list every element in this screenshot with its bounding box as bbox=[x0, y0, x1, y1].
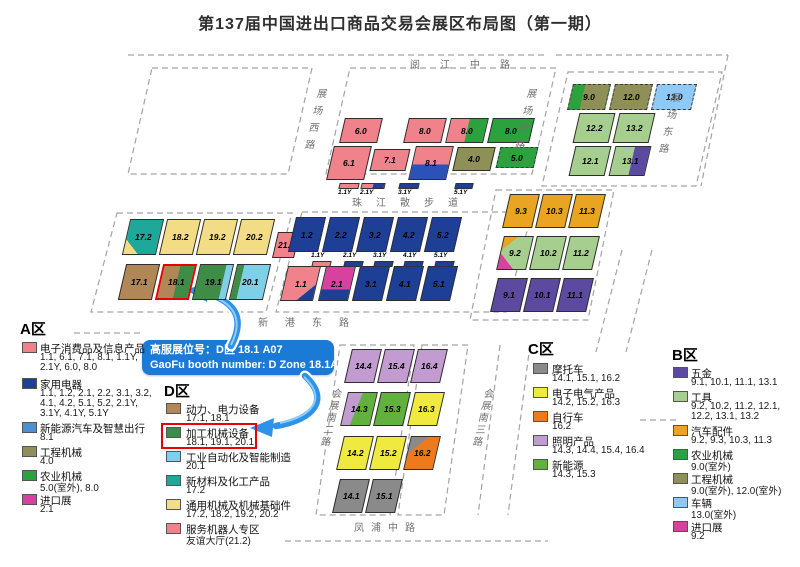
hall-14.3: 14.3 bbox=[340, 392, 378, 426]
hall-label: 6.1 bbox=[343, 158, 355, 168]
hall-label: 6.0 bbox=[355, 126, 367, 136]
hall-label: 7.1 bbox=[384, 155, 396, 165]
hall-label: 16.3 bbox=[418, 404, 435, 414]
legend-halls: 13.0(室外) bbox=[691, 507, 736, 521]
annex-label: 3.1Y bbox=[373, 252, 386, 259]
annex-label: 1.1Y bbox=[338, 189, 351, 196]
hall-label: 20.2 bbox=[246, 232, 263, 242]
hall-label: 3.2 bbox=[369, 230, 381, 240]
hall-12.0: 12.0 bbox=[609, 84, 653, 110]
hall-label: 11.2 bbox=[573, 248, 589, 258]
hall-label: 11.1 bbox=[567, 290, 583, 300]
road-label: 会展南三路 bbox=[467, 388, 496, 448]
legend-swatch bbox=[22, 494, 37, 505]
road-label: 珠江散步道 bbox=[352, 194, 472, 209]
legend-swatch bbox=[166, 427, 181, 438]
annex-bar-5.1Y bbox=[434, 261, 454, 267]
legend-swatch bbox=[22, 378, 37, 389]
legend-swatch bbox=[533, 435, 548, 446]
hall-label: 15.1 bbox=[376, 491, 393, 501]
hall-label: 12.0 bbox=[623, 92, 640, 102]
hall-label: 19.1 bbox=[205, 277, 222, 287]
road-label: 新港东路 bbox=[258, 314, 366, 329]
hall-16.2: 16.2 bbox=[403, 436, 441, 470]
hall-19.2: 19.2 bbox=[196, 219, 238, 255]
hall-label: 1.1 bbox=[295, 279, 307, 289]
legend-halls: 9.0(室外), 12.0(室外) bbox=[691, 483, 781, 497]
hall-label: 10.3 bbox=[546, 206, 563, 216]
legend-swatch bbox=[22, 446, 37, 457]
hall-14.2: 14.2 bbox=[336, 436, 374, 470]
hall-label: 8.0 bbox=[419, 126, 431, 136]
legend-halls: 17.2, 18.2, 19.2, 20.2 bbox=[186, 509, 279, 520]
page-title: 第137届中国进出口商品交易会展区布局图（第一期） bbox=[0, 10, 800, 34]
legend-halls: 16.2 bbox=[552, 421, 571, 432]
hall-11.2: 11.2 bbox=[562, 236, 600, 270]
hall-label: 12.1 bbox=[582, 156, 599, 166]
legend-category: 新能源汽车及智慧出行 bbox=[40, 421, 145, 436]
road-label: 凤浦中路 bbox=[354, 519, 422, 534]
hall-1.1: 1.1 bbox=[280, 266, 321, 301]
legend-halls: 20.1 bbox=[186, 461, 205, 472]
legend-title-B: B区 bbox=[672, 344, 698, 365]
hall-16.4: 16.4 bbox=[410, 349, 448, 383]
hall-10.2: 10.2 bbox=[529, 236, 567, 270]
hall-label: 14.4 bbox=[355, 361, 372, 371]
hall-label: 4.2 bbox=[403, 230, 415, 240]
hall-6.1: 6.1 bbox=[326, 146, 372, 180]
legend-swatch bbox=[22, 470, 37, 481]
hall-label: 16.2 bbox=[414, 448, 431, 458]
hall-17.1: 17.1 bbox=[118, 264, 160, 300]
legend-swatch bbox=[673, 425, 688, 436]
hall-label: 10.2 bbox=[540, 248, 557, 258]
hall-16.3: 16.3 bbox=[407, 392, 445, 426]
hall-9.0: 9.0 bbox=[567, 84, 611, 110]
legend-halls: 12.2, 13.1, 13.2 bbox=[691, 411, 759, 422]
hall-17.2: 17.2 bbox=[122, 219, 164, 255]
hall-20.1: 20.1 bbox=[229, 264, 271, 300]
hall-label: 5.1 bbox=[433, 279, 445, 289]
hall-10.3: 10.3 bbox=[535, 194, 573, 228]
legend-swatch bbox=[166, 403, 181, 414]
legend-halls: 14.1, 15.1, 16.2 bbox=[552, 373, 620, 384]
hall-label: 13.2 bbox=[626, 123, 643, 133]
hall-label: 3.1 bbox=[365, 279, 377, 289]
hall-label: 14.3 bbox=[351, 404, 368, 414]
legend-halls: 9.0(室外) bbox=[691, 459, 731, 473]
hall-label: 9.1 bbox=[503, 290, 515, 300]
legend-halls: 8.1 bbox=[40, 432, 54, 443]
hall-13.1: 13.1 bbox=[609, 146, 652, 176]
hall-7.1: 7.1 bbox=[369, 149, 410, 171]
hall-12.2: 12.2 bbox=[573, 113, 616, 143]
hall-label: 17.1 bbox=[131, 277, 148, 287]
hall-15.2: 15.2 bbox=[369, 436, 407, 470]
booth-callout: 高服展位号：D区 18.1 A07 GaoFu booth number: D … bbox=[142, 340, 334, 375]
legend-swatch bbox=[533, 411, 548, 422]
legend-halls: 4.0 bbox=[40, 456, 54, 467]
hall-11.3: 11.3 bbox=[568, 194, 606, 228]
hall-20.2: 20.2 bbox=[233, 219, 275, 255]
legend-halls: 17.1, 18.1 bbox=[186, 413, 230, 424]
legend-halls: 2.1Y, 6.0, 8.0 bbox=[40, 362, 97, 373]
hall-label: 16.4 bbox=[421, 361, 438, 371]
annex-bar-2.1Y bbox=[343, 261, 363, 267]
legend-halls: 14.3, 15.3 bbox=[552, 469, 596, 480]
hall-label: 15.3 bbox=[384, 404, 401, 414]
legend-swatch bbox=[22, 342, 37, 353]
hall-label: 5.2 bbox=[437, 230, 449, 240]
hall-3.2: 3.2 bbox=[356, 217, 394, 252]
annex-label: 5.1Y bbox=[434, 252, 447, 259]
legend-title-D: D区 bbox=[164, 380, 190, 401]
hall-label: 17.2 bbox=[135, 232, 152, 242]
hall-8.0: 8.0 bbox=[445, 118, 489, 143]
hall-label: 18.2 bbox=[172, 232, 189, 242]
legend-swatch bbox=[673, 521, 688, 532]
hall-label: 11.3 bbox=[579, 206, 595, 216]
legend-halls: 14.3, 14.4, 15.4, 16.4 bbox=[552, 445, 645, 456]
legend-halls: 3.1Y, 4.1Y, 5.1Y bbox=[40, 408, 109, 419]
hall-label: 18.1 bbox=[168, 277, 185, 287]
hall-2.2: 2.2 bbox=[322, 217, 360, 252]
legend-swatch bbox=[533, 363, 548, 374]
booth-callout-line-en: GaoFu booth number: D Zone 18.1A07 bbox=[150, 358, 326, 373]
hall-label: 19.2 bbox=[209, 232, 226, 242]
road-label: 阅江中路 bbox=[410, 56, 530, 71]
hall-4.0: 4.0 bbox=[452, 147, 496, 171]
hall-4.1: 4.1 bbox=[386, 266, 424, 301]
legend-swatch bbox=[673, 391, 688, 402]
hall-18.2: 18.2 bbox=[159, 219, 201, 255]
hall-label: 8.0 bbox=[461, 126, 473, 136]
hall-label: 9.3 bbox=[515, 206, 527, 216]
legend-halls: 5.0(室外), 8.0 bbox=[40, 480, 99, 494]
hall-2.1: 2.1 bbox=[318, 266, 356, 301]
hall-label: 8.1 bbox=[425, 158, 437, 168]
legend-swatch bbox=[673, 497, 688, 508]
hall-3.1: 3.1 bbox=[352, 266, 390, 301]
hall-5.2: 5.2 bbox=[424, 217, 462, 252]
annex-label: 1.1Y bbox=[311, 252, 324, 259]
hall-9.3: 9.3 bbox=[502, 194, 540, 228]
hall-19.1: 19.1 bbox=[192, 264, 234, 300]
hall-14.1: 14.1 bbox=[332, 479, 370, 513]
hall-15.1: 15.1 bbox=[365, 479, 403, 513]
hall-label: 20.1 bbox=[242, 277, 259, 287]
hall-10.1: 10.1 bbox=[523, 278, 561, 312]
legend-title-A: A区 bbox=[20, 318, 46, 339]
road-label: 展场西路 bbox=[298, 88, 329, 156]
hall-4.2: 4.2 bbox=[390, 217, 428, 252]
hall-15.3: 15.3 bbox=[373, 392, 411, 426]
hall-label: 2.1 bbox=[331, 279, 343, 289]
legend-halls: 9.2, 9.3, 10.3, 11.3 bbox=[691, 435, 772, 446]
hall-15.4: 15.4 bbox=[377, 349, 415, 383]
hall-11.1: 11.1 bbox=[556, 278, 594, 312]
hall-label: 10.1 bbox=[534, 290, 551, 300]
hall-label: 4.1 bbox=[399, 279, 411, 289]
legend-swatch bbox=[673, 449, 688, 460]
hall-9.1: 9.1 bbox=[490, 278, 528, 312]
hall-label: 1.2 bbox=[301, 230, 313, 240]
legend-halls: 18.1, 19.1, 20.1 bbox=[186, 437, 254, 448]
hall-label: 4.0 bbox=[468, 154, 480, 164]
exhibition-map: 第137届中国进出口商品交易会展区布局图（第一期） 高服展位号：D区 18.1 … bbox=[0, 0, 800, 567]
hall-label: 15.2 bbox=[380, 448, 397, 458]
annex-label: 4.1Y bbox=[403, 252, 416, 259]
legend-halls: 2.1 bbox=[40, 504, 54, 515]
legend-halls: 9.1, 10.1, 11.1, 13.1 bbox=[691, 377, 777, 388]
hall-9.2: 9.2 bbox=[496, 236, 534, 270]
hall-6.0: 6.0 bbox=[339, 118, 383, 143]
legend-halls: 14.2, 15.2, 16.3 bbox=[552, 397, 620, 408]
hall-5.1: 5.1 bbox=[420, 266, 458, 301]
legend-swatch bbox=[22, 422, 37, 433]
hall-label: 9.0 bbox=[583, 92, 595, 102]
legend-swatch bbox=[166, 499, 181, 510]
hall-label: 14.1 bbox=[343, 491, 360, 501]
legend-swatch bbox=[673, 367, 688, 378]
annex-bar-1.1Y bbox=[311, 261, 331, 267]
hall-label: 9.2 bbox=[509, 248, 521, 258]
legend-halls: 17.2 bbox=[186, 485, 205, 496]
legend-swatch bbox=[533, 459, 548, 470]
hall-8.0: 8.0 bbox=[403, 118, 447, 143]
legend-swatch bbox=[673, 473, 688, 484]
annex-bar-3.1Y bbox=[373, 261, 393, 267]
hall-label: 15.4 bbox=[388, 361, 405, 371]
legend-halls: 9.2 bbox=[691, 531, 705, 542]
hall-label: 14.2 bbox=[347, 448, 364, 458]
booth-callout-line-cn: 高服展位号：D区 18.1 A07 bbox=[150, 343, 326, 358]
road-label: 会展南二路 bbox=[315, 388, 344, 448]
hall-13.2: 13.2 bbox=[613, 113, 656, 143]
hall-8.1: 8.1 bbox=[408, 146, 454, 180]
hall-label: 13.1 bbox=[622, 156, 639, 166]
hall-label: 2.2 bbox=[335, 230, 347, 240]
legend-halls: 友谊大厅(21.2) bbox=[186, 533, 251, 547]
legend-swatch bbox=[166, 451, 181, 462]
annex-bar-4.1Y bbox=[403, 261, 423, 267]
hall-14.4: 14.4 bbox=[344, 349, 382, 383]
annex-label: 2.1Y bbox=[343, 252, 356, 259]
legend-swatch bbox=[166, 523, 181, 534]
hall-12.1: 12.1 bbox=[569, 146, 612, 176]
legend-swatch bbox=[166, 475, 181, 486]
legend-swatch bbox=[533, 387, 548, 398]
hall-label: 12.2 bbox=[586, 123, 603, 133]
hall-18.1: 18.1 bbox=[155, 264, 197, 300]
hall-1.2: 1.2 bbox=[288, 217, 326, 252]
legend-title-C: C区 bbox=[528, 338, 554, 359]
